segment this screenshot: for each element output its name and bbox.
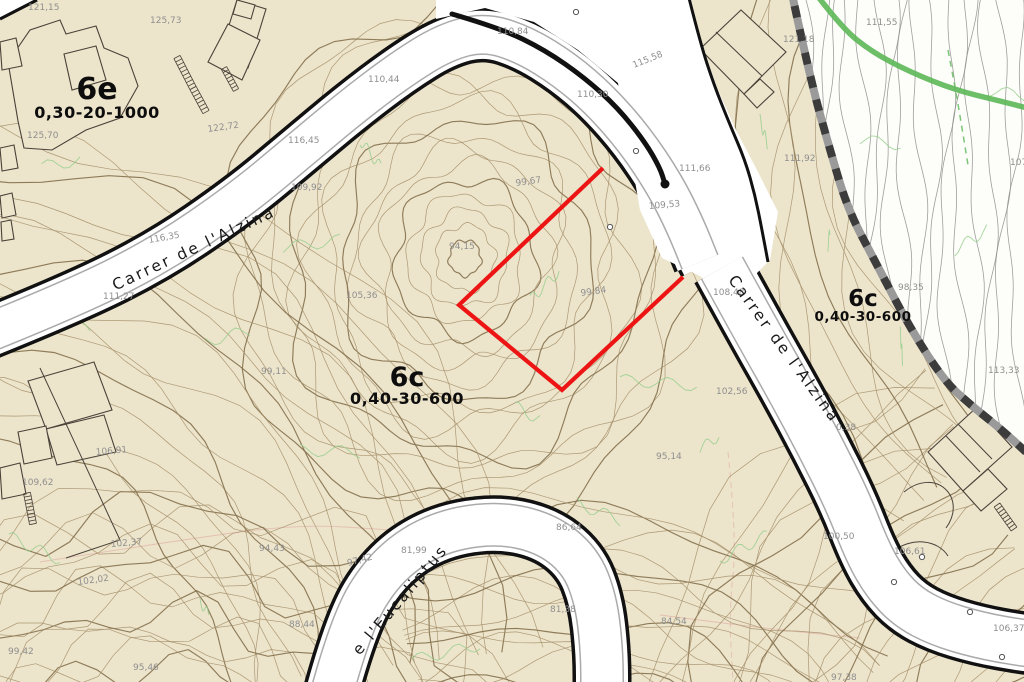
elevation-label: 88,44 — [289, 620, 315, 630]
building — [1, 220, 14, 241]
elevation-label: 109,92 — [291, 183, 323, 193]
elevation-label: 111,92 — [784, 154, 816, 164]
elevation-label: 106,37 — [993, 624, 1024, 634]
elevation-label: 125,73 — [150, 16, 182, 26]
elevation-label: 0,38 — [836, 423, 856, 433]
elevation-label: 100,50 — [823, 532, 855, 542]
elevation-label: 94,43 — [259, 544, 285, 554]
elevation-label: 107,02 — [1010, 158, 1024, 168]
elevation-label: 81,99 — [401, 546, 427, 556]
elevation-label: 116,45 — [288, 136, 320, 146]
elevation-label: 86,64 — [556, 523, 582, 533]
elevation-label: 99,11 — [261, 367, 287, 377]
elevation-label: 95,14 — [656, 452, 682, 462]
elevation-label: 111,27 — [103, 292, 135, 302]
elevation-label: 110,44 — [368, 75, 400, 85]
elevation-label: 110,84 — [497, 27, 529, 37]
map-stage: 121,15125,73125,70122,72116,45110,44110,… — [0, 0, 1024, 682]
elevation-label: 106,61 — [894, 547, 926, 557]
elevation-label: 109,62 — [22, 478, 54, 488]
elevation-label: 98,35 — [898, 283, 924, 293]
zone-params-6c-center: 0,40-30-600 — [350, 389, 464, 408]
elevation-label: 105,36 — [346, 291, 378, 301]
elevation-label: 121,18 — [783, 35, 815, 45]
elevation-label: 125,70 — [27, 131, 59, 141]
zone-params-6e: 0,30-20-1000 — [34, 103, 160, 122]
elevation-label: 99,42 — [8, 647, 34, 657]
elevation-label: 110,30 — [577, 90, 609, 100]
building — [18, 426, 52, 464]
elevation-label: 111,55 — [866, 18, 898, 28]
elevation-label: 95,46 — [133, 663, 159, 673]
topographic-map: 121,15125,73125,70122,72116,45110,44110,… — [0, 0, 1024, 682]
elevation-label: 102,56 — [716, 387, 748, 397]
zone-code-6e: 6e — [76, 72, 117, 107]
zone-params-6c-east: 0,40-30-600 — [815, 309, 912, 325]
elevation-label: 84,54 — [661, 617, 687, 627]
elevation-label: 81,38 — [550, 605, 576, 615]
elevation-label: 121,15 — [28, 3, 60, 13]
elevation-label: 111,66 — [679, 164, 711, 174]
elevation-label: 113,33 — [988, 366, 1020, 376]
elevation-label: 97,38 — [831, 673, 857, 682]
elevation-label: 94,15 — [449, 242, 475, 252]
